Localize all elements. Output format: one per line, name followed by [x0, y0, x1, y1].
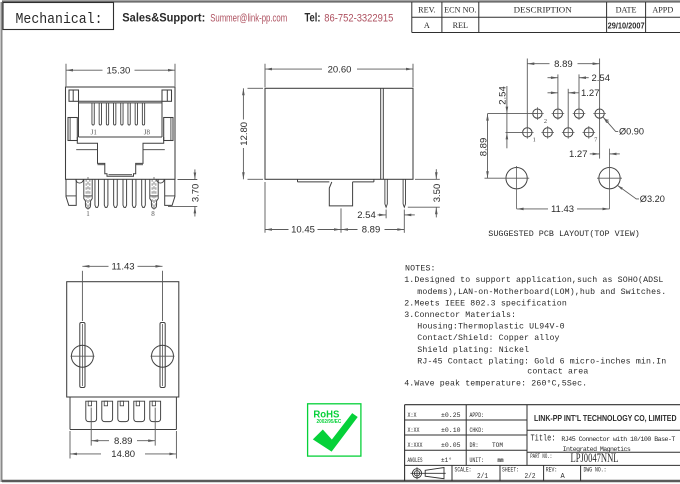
svg-text:2.54: 2.54 [592, 73, 611, 84]
svg-text:DR:: DR: [470, 442, 479, 450]
svg-text:CHKD:: CHKD: [470, 427, 485, 435]
svg-text:1: 1 [533, 137, 536, 144]
svg-text:12.80: 12.80 [239, 122, 250, 146]
svg-text:2/2: 2/2 [525, 473, 536, 481]
svg-text:1: 1 [86, 210, 90, 218]
svg-text:20.60: 20.60 [328, 64, 352, 75]
svg-text:LPJ0047NNL: LPJ0047NNL [571, 451, 619, 465]
svg-text:Tel:: Tel: [305, 10, 321, 24]
svg-text:Shield plating: Nickel: Shield plating: Nickel [417, 345, 529, 355]
svg-text:TOM: TOM [492, 442, 503, 450]
svg-text:±0.05: ±0.05 [441, 442, 461, 450]
svg-text:2: 2 [544, 118, 547, 125]
svg-text:2002/95/EC: 2002/95/EC [317, 419, 342, 425]
svg-text:SUGGESTED PCB LAYOUT(TOP VIEW): SUGGESTED PCB LAYOUT(TOP VIEW) [488, 229, 640, 239]
svg-text:DESCRIPTION: DESCRIPTION [514, 6, 572, 15]
svg-text:modems),LAN-on-Motherboard(LOM: modems),LAN-on-Motherboard(LOM),hub and … [417, 287, 666, 297]
svg-text:REV.: REV. [418, 6, 435, 15]
svg-text:7: 7 [594, 137, 597, 144]
svg-text:±1°: ±1° [441, 456, 452, 465]
svg-text:3.70: 3.70 [191, 184, 202, 203]
svg-text:8.89: 8.89 [114, 436, 133, 447]
svg-text:RJ45 Connector with 10/100 Bas: RJ45 Connector with 10/100 Base-T [561, 436, 675, 443]
svg-text:2.Meets IEEE 802.3 specificati: 2.Meets IEEE 802.3 specification [404, 298, 567, 308]
svg-text:A: A [424, 21, 430, 30]
svg-text:11.43: 11.43 [551, 204, 574, 215]
svg-text:8: 8 [151, 210, 155, 218]
svg-text:Summer@link-pp.com: Summer@link-pp.com [210, 12, 287, 24]
svg-text:APPD:: APPD: [470, 412, 485, 420]
svg-text:15.30: 15.30 [107, 66, 131, 77]
svg-text:LINK-PP INT'L TECHNOLOGY CO, L: LINK-PP INT'L TECHNOLOGY CO, LIMITED [534, 414, 677, 423]
svg-text:2.54: 2.54 [498, 86, 509, 105]
svg-text:3.50: 3.50 [432, 184, 443, 203]
svg-text:±0.25: ±0.25 [441, 412, 461, 420]
svg-text:PART NO.:: PART NO.: [530, 453, 552, 460]
svg-text:J8: J8 [144, 128, 151, 136]
svg-text:8.89: 8.89 [554, 59, 573, 70]
svg-text:REV:: REV: [546, 467, 558, 474]
svg-text:REL: REL [453, 21, 468, 30]
svg-text:14.80: 14.80 [111, 449, 135, 460]
svg-text:Title:: Title: [531, 434, 556, 444]
svg-text:2.54: 2.54 [357, 210, 376, 221]
svg-text:DWG NO.:: DWG NO.: [584, 467, 607, 474]
svg-text:X:XX: X:XX [408, 427, 420, 435]
svg-text:86-752-3322915: 86-752-3322915 [324, 12, 393, 24]
svg-text:8.89: 8.89 [362, 225, 381, 236]
svg-text:1.Designed to support applicat: 1.Designed to support application,such a… [404, 275, 663, 285]
svg-text:RJ-45 Contact plating: Gold 6: RJ-45 Contact plating: Gold 6 micro-inch… [417, 356, 666, 366]
svg-text:ANGLES: ANGLES [408, 457, 423, 465]
svg-text:29/10/2007: 29/10/2007 [608, 21, 645, 30]
svg-text:SCALE:: SCALE: [455, 467, 472, 474]
svg-text:Mechanical:: Mechanical: [16, 11, 103, 28]
svg-text:mm: mm [498, 457, 504, 464]
svg-text:8.89: 8.89 [479, 138, 490, 157]
svg-text:Ø3.20: Ø3.20 [640, 194, 665, 204]
svg-text:±0.10: ±0.10 [441, 427, 461, 435]
svg-text:2/1: 2/1 [477, 473, 488, 481]
svg-text:ECN NO.: ECN NO. [444, 6, 476, 15]
svg-text:APPD: APPD [652, 6, 673, 15]
svg-text:NOTES:: NOTES: [405, 265, 436, 274]
svg-text:Contact/Shield: Copper alloy: Contact/Shield: Copper alloy [417, 333, 559, 343]
svg-text:UNIT:: UNIT: [470, 457, 485, 465]
svg-text:3.Connector Materials:: 3.Connector Materials: [404, 310, 516, 320]
svg-text:SHEET:: SHEET: [502, 467, 519, 474]
svg-text:4.Wave peak temperature: 260°C: 4.Wave peak temperature: 260°C,5Sec. [404, 378, 587, 388]
svg-text:DATE: DATE [616, 6, 637, 15]
svg-text:X:XXX: X:XXX [408, 442, 423, 450]
svg-text:11.43: 11.43 [111, 262, 134, 273]
svg-text:1.27: 1.27 [569, 149, 588, 160]
svg-text:10.45: 10.45 [291, 225, 315, 236]
svg-text:contact area: contact area [527, 367, 588, 376]
svg-text:1.27: 1.27 [581, 88, 600, 99]
svg-text:J1: J1 [91, 128, 98, 136]
svg-text:X:X: X:X [408, 412, 417, 420]
svg-text:Housing:Thermoplastic UL94V-0: Housing:Thermoplastic UL94V-0 [417, 322, 564, 332]
svg-text:Sales&Support:: Sales&Support: [122, 10, 205, 24]
svg-text:Ø0.90: Ø0.90 [619, 127, 644, 137]
